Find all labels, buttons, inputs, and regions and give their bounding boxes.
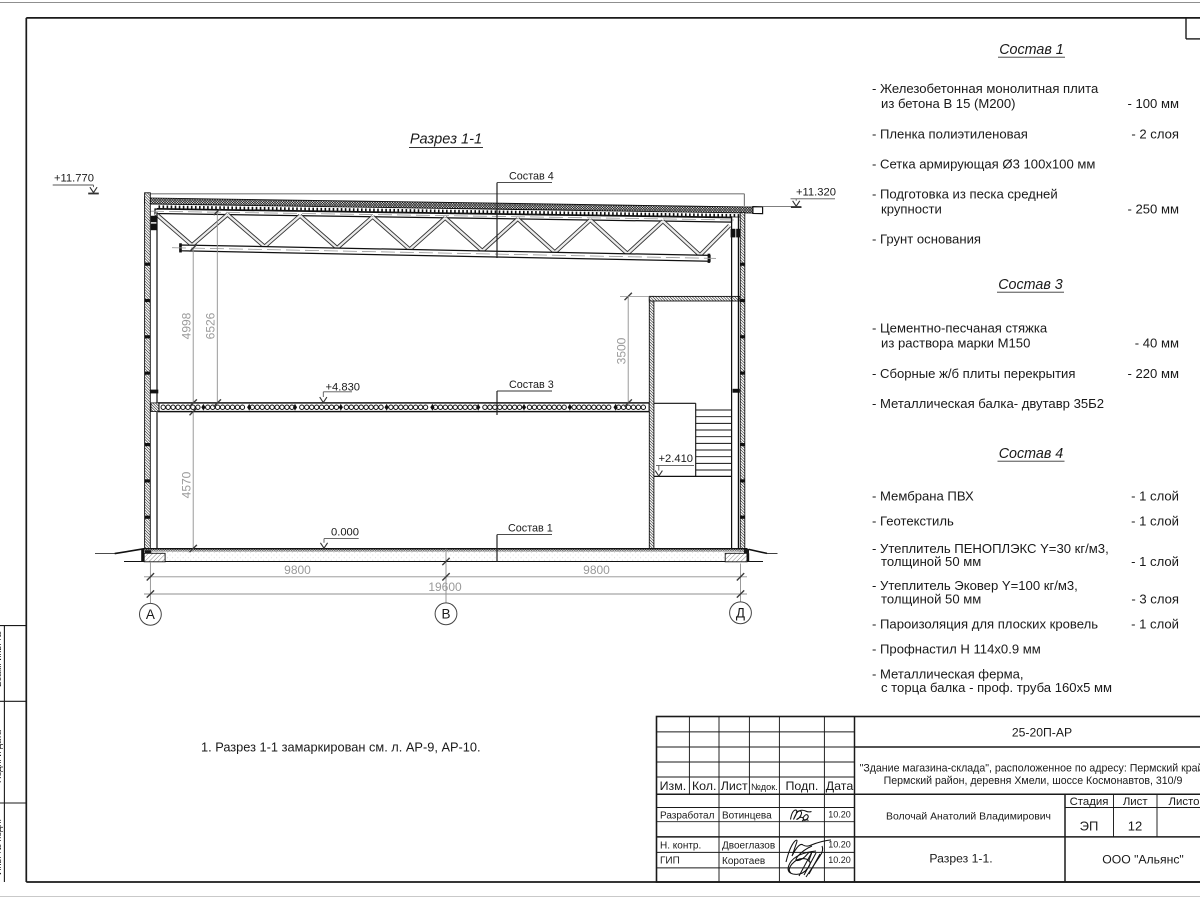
svg-text:ЭП: ЭП	[1080, 819, 1099, 834]
svg-text:Состав 1: Состав 1	[999, 42, 1064, 58]
svg-text:из бетона В 15 (М200): из бетона В 15 (М200)	[881, 96, 1016, 111]
svg-text:- 100 мм: - 100 мм	[1128, 96, 1180, 111]
svg-text:Разрез 1-1.: Разрез 1-1.	[929, 852, 992, 866]
svg-text:10.20: 10.20	[828, 855, 851, 865]
svg-text:+11.320: +11.320	[796, 187, 836, 199]
svg-text:Разработал: Разработал	[660, 810, 715, 822]
svg-text:- 220 мм: - 220 мм	[1128, 366, 1180, 381]
svg-text:Кол.: Кол.	[692, 779, 717, 793]
svg-text:4998: 4998	[180, 312, 194, 339]
svg-text:- Профнастил Н 114х0.9 мм: - Профнастил Н 114х0.9 мм	[872, 642, 1041, 657]
svg-text:- Сборные ж/б плиты перекрытия: - Сборные ж/б плиты перекрытия	[872, 366, 1075, 381]
svg-text:Лист: Лист	[1123, 796, 1149, 808]
svg-text:Взам. инв. №: Взам. инв. №	[0, 631, 3, 687]
svg-text:ГИП: ГИП	[660, 856, 680, 867]
svg-text:Лист: Лист	[721, 779, 748, 793]
svg-text:Инв. № подл.: Инв. № подл.	[0, 819, 3, 875]
svg-text:12: 12	[1128, 819, 1142, 834]
svg-text:Листов: Листов	[1168, 796, 1200, 808]
svg-text:- Мембрана ПВХ: - Мембрана ПВХ	[872, 489, 974, 504]
svg-text:Стадия: Стадия	[1070, 796, 1109, 808]
svg-text:- Подготовка из песка средней: - Подготовка из песка средней	[872, 187, 1058, 202]
svg-text:Состав 4: Состав 4	[999, 446, 1064, 462]
svg-text:ООО "Альянс": ООО "Альянс"	[1102, 853, 1184, 867]
svg-text:Пермский район, деревня Хмели,: Пермский район, деревня Хмели, шоссе Кос…	[884, 775, 1183, 787]
svg-text:- 3 слоя: - 3 слоя	[1131, 592, 1179, 607]
svg-text:- Грунт основания: - Грунт основания	[872, 232, 981, 247]
svg-text:- 1 слой: - 1 слой	[1131, 489, 1179, 504]
svg-text:Изм.: Изм.	[660, 779, 687, 793]
svg-text:+11.770: +11.770	[54, 173, 94, 185]
svg-text:- 2 слоя: - 2 слоя	[1131, 127, 1179, 142]
svg-text:Разрез 1-1: Разрез 1-1	[410, 132, 482, 148]
svg-text:- 1 слой: - 1 слой	[1131, 554, 1179, 569]
svg-text:9800: 9800	[284, 563, 311, 577]
svg-text:- 1 слой: - 1 слой	[1131, 514, 1179, 529]
svg-text:В: В	[441, 607, 450, 622]
svg-text:Коротаев: Коротаев	[722, 856, 765, 867]
svg-text:Д: Д	[736, 606, 745, 621]
svg-text:Двоеглазов: Двоеглазов	[722, 841, 775, 852]
svg-text:0.000: 0.000	[331, 527, 359, 539]
svg-text:9800: 9800	[583, 563, 610, 577]
svg-text:- Железобетонная монолитная п: - Железобетонная монолитная плита	[872, 81, 1099, 96]
svg-text:Состав 3: Состав 3	[509, 379, 554, 391]
svg-text:Состав 3: Состав 3	[998, 277, 1063, 293]
svg-text:+2.410: +2.410	[659, 453, 694, 465]
svg-text:- Пленка полиэтиленовая: - Пленка полиэтиленовая	[872, 127, 1028, 142]
svg-text:А: А	[146, 607, 155, 622]
svg-text:- 250 мм: - 250 мм	[1128, 202, 1180, 217]
svg-text:Состав 4: Состав 4	[509, 171, 554, 183]
svg-text:10.20: 10.20	[828, 840, 851, 850]
svg-text:- Металлическая балка- двутавр: - Металлическая балка- двутавр 35Б2	[872, 396, 1104, 411]
svg-text:Подп. и дата: Подп. и дата	[0, 730, 3, 783]
svg-text:- 40 мм: - 40 мм	[1135, 336, 1179, 351]
svg-text:из раствора марки М150: из раствора марки М150	[881, 336, 1030, 351]
svg-text:19600: 19600	[428, 580, 462, 594]
svg-text:Н. контр.: Н. контр.	[660, 840, 701, 851]
svg-text:- Цементно-песчаная стяжка: - Цементно-песчаная стяжка	[872, 321, 1048, 336]
svg-text:Подп.: Подп.	[785, 779, 818, 793]
svg-text:Дата: Дата	[826, 779, 854, 793]
svg-text:4570: 4570	[180, 471, 194, 498]
svg-text:Волочай Анатолий Владимирович: Волочай Анатолий Владимирович	[886, 812, 1051, 823]
svg-text:6526: 6526	[204, 312, 218, 339]
svg-text:25-20П-АР: 25-20П-АР	[1012, 726, 1072, 740]
svg-text:толщиной 50 мм: толщиной 50 мм	[881, 592, 981, 607]
svg-text:с торца балка - проф. труба 16: с торца балка - проф. труба 160х5 мм	[881, 680, 1112, 695]
svg-text:- Сетка армирующая Ø3 100х100: - Сетка армирующая Ø3 100х100 мм	[872, 157, 1095, 172]
svg-text:- Геотекстиль: - Геотекстиль	[872, 514, 954, 529]
svg-text:крупности: крупности	[881, 202, 942, 217]
svg-text:толщиной 50 мм: толщиной 50 мм	[881, 554, 981, 569]
svg-text:- Пароизоляция для плоских кро: - Пароизоляция для плоских кровель	[872, 617, 1098, 632]
svg-text:"Здание магазина-склада", расп: "Здание магазина-склада", расположенное …	[860, 763, 1200, 775]
svg-text:Вотинцева: Вотинцева	[722, 811, 772, 822]
svg-text:Состав 1: Состав 1	[508, 523, 553, 535]
svg-text:№док.: №док.	[751, 782, 778, 792]
svg-text:- 1 слой: - 1 слой	[1131, 617, 1179, 632]
svg-text:1. Разрез 1-1 замаркирован см.: 1. Разрез 1-1 замаркирован см. л. АР-9, …	[201, 740, 481, 755]
svg-text:3500: 3500	[615, 337, 629, 364]
svg-text:10.20: 10.20	[828, 810, 851, 820]
